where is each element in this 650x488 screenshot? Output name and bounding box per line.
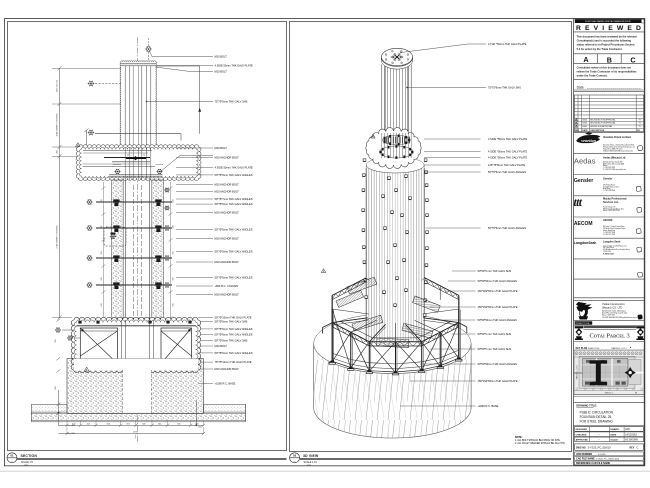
svg-text:FOUNTAIN DETAIL 25: FOUNTAIN DETAIL 25 [580, 415, 612, 419]
svg-text:Consultants(s) and is accorded: Consultants(s) and is accorded the follo… [577, 39, 632, 43]
svg-text:M10 ANCHOR BOLT: M10 ANCHOR BOLT [215, 190, 240, 194]
svg-text:M10 BOLT: M10 BOLT [215, 146, 228, 150]
svg-text:T + 853 2872 3282: T + 853 2872 3282 [603, 167, 615, 169]
svg-text:REV: REV [575, 130, 580, 132]
svg-text:4 SIDE *50mm THK GALV PLATE: 4 SIDE *50mm THK GALV PLATE [488, 149, 527, 153]
svg-text:Aedas (Macau) Ltd.: Aedas (Macau) Ltd. [603, 156, 626, 159]
svg-text:T + 852 2317 7000: T + 852 2317 7000 [603, 232, 615, 234]
svg-text:50*75*6mm THK GALV ANGLES: 50*75*6mm THK GALV ANGLES [215, 275, 253, 279]
svg-text:DRAWN: DRAWN [610, 428, 619, 431]
svg-text:03/03: 03/03 [582, 123, 587, 125]
svg-text:500: 500 [101, 199, 103, 202]
svg-text:5.4 for action by the Trade Co: 5.4 for action by the Trade Contractor. [577, 47, 623, 51]
svg-text:KEY PLAN: KEY PLAN [576, 347, 588, 350]
svg-text:3D VIEW: 3D VIEW [303, 454, 319, 458]
svg-text:venetian: venetian [581, 138, 596, 143]
svg-text:under the Trade Contract.: under the Trade Contract. [577, 74, 608, 78]
svg-text:▲: ▲ [630, 346, 632, 349]
svg-text:50*75*6mm THK GALV ANGLES: 50*75*6mm THK GALV ANGLES [488, 170, 526, 174]
svg-text:2. ALL FILLET WELDED SHOULD B: 2. ALL FILLET WELDED SHOULD BE 3mm THK. [515, 442, 566, 445]
svg-text:LWC: LWC [625, 429, 630, 431]
svg-text:NOTE:: NOTE: [515, 436, 523, 439]
svg-text:3-YS25_PC_05/010: 3-YS25_PC_05/010 [588, 445, 612, 449]
svg-text:50*50*50mm THK GALV ANGLES: 50*50*50mm THK GALV ANGLES [478, 318, 518, 322]
svg-text:PARCEL 1, LOT 2: PARCEL 1, LOT 2 [612, 347, 627, 350]
svg-text:2700 (VERIFY ON SITE): 2700 (VERIFY ON SITE) [57, 225, 59, 248]
svg-text:M10 ANCHOR BOLT: M10 ANCHOR BOLT [215, 293, 240, 297]
svg-text:1219 (V.O.S.): 1219 (V.O.S.) [57, 79, 59, 92]
svg-text:No.258 Praca Kin Heng Long, 18: No.258 Praca Kin Heng Long, 18 andar [602, 313, 628, 315]
svg-text:50*75*6mm THK GALV ANGLES: 50*75*6mm THK GALV ANGLES [215, 227, 253, 231]
svg-text:500: 500 [173, 251, 175, 254]
svg-text:M10 BOLT: M10 BOLT [215, 344, 228, 348]
svg-text:SCALE 1:10: SCALE 1:10 [304, 461, 318, 464]
svg-text:500: 500 [101, 303, 103, 306]
svg-text:50*75*6mm THK GALV ANGLES: 50*75*6mm THK GALV ANGLES [215, 202, 253, 206]
svg-text:150*150*50mm THK GALV PLATE: 150*150*50mm THK GALV PLATE [478, 305, 518, 309]
svg-text:16F China Plaza,: 16F China Plaza, [603, 247, 615, 249]
svg-text:50*75*6mm THK GALV ANGLES: 50*75*6mm THK GALV ANGLES [215, 333, 253, 337]
svg-text:50*50*50mm THK GALV ANGLES: 50*50*50mm THK GALV ANGLES [478, 279, 518, 283]
svg-text:500: 500 [173, 277, 175, 280]
svg-text:(Macau) CO. LTD.: (Macau) CO. LTD. [602, 305, 623, 309]
svg-text:PARCEL 2: PARCEL 2 [605, 392, 614, 395]
svg-text:50: 50 [143, 154, 145, 156]
svg-text:AS SHOWN: AS SHOWN [625, 439, 638, 442]
svg-text:T + 852 2598 8101: T + 852 2598 8101 [603, 190, 615, 192]
svg-text:PUBLIC CIRCULATION: PUBLIC CIRCULATION [580, 410, 614, 414]
svg-text:50*75*6mm THK GALV SHS: 50*75*6mm THK GALV SHS [215, 338, 248, 342]
svg-text:01: 01 [10, 454, 14, 458]
svg-text:500: 500 [101, 277, 103, 280]
svg-text:M10 ANCHOR BOLT: M10 ANCHOR BOLT [215, 236, 240, 240]
svg-text:500: 500 [101, 225, 103, 228]
svg-text:4 SIDE 50mm THK GALV PLATE: 4 SIDE 50mm THK GALV PLATE [215, 64, 253, 68]
svg-text:+1090 R.C. BASE: +1090 R.C. BASE [215, 381, 236, 385]
svg-text:+800 R.C. COLUMN: +800 R.C. COLUMN [215, 284, 239, 288]
svg-text:50*50*5 mm THK GALV SHS: 50*50*5 mm THK GALV SHS [478, 269, 512, 273]
svg-text:50: 50 [127, 154, 129, 156]
svg-text:PROJECT TITLE:: PROJECT TITLE: [575, 323, 590, 325]
svg-text:DESCRIPTION: DESCRIPTION [591, 130, 605, 132]
svg-text:RE-ISSUED FOR APPROVAL: RE-ISSUED FOR APPROVAL [590, 122, 615, 125]
svg-text:3: 3 [576, 119, 577, 121]
svg-text:LangdonSeah: LangdonSeah [574, 241, 596, 245]
svg-text:Macau: Macau [603, 165, 608, 167]
svg-text:M10 ANCHOR BOLT: M10 ANCHOR BOLT [215, 211, 240, 215]
svg-text:REFERENCE CAD FILE NAME: REFERENCE CAD FILE NAME [576, 462, 611, 465]
svg-text:50*50*5 mm THK GALV SHS: 50*50*5 mm THK GALV SHS [478, 332, 512, 336]
svg-text:1: 1 [576, 126, 577, 128]
svg-text:SECTION: SECTION [21, 454, 38, 458]
svg-text:Hong Kong: Hong Kong [603, 188, 610, 190]
svg-text:Consultant review of this docu: Consultant review of this document does … [577, 66, 632, 70]
svg-text:460*200*50mm THK GALV PLATE: 460*200*50mm THK GALV PLATE [478, 289, 518, 293]
svg-text:75*75*6mm THK GALV SHS: 75*75*6mm THK GALV SHS [488, 85, 521, 89]
svg-text:600: 600 [195, 423, 198, 425]
svg-text:Aedas: Aedas [574, 156, 596, 165]
svg-text:464: 464 [158, 423, 161, 425]
svg-text:600: 600 [142, 423, 145, 425]
svg-text:JOB NUMBER: JOB NUMBER [576, 453, 592, 456]
svg-text:relieve the Trade Contractor o: relieve the Trade Contractor of its resp… [577, 70, 638, 74]
svg-text:M10 BOLT: M10 BOLT [215, 55, 228, 59]
svg-text:PARCEL 1, LOT 1: PARCEL 1, LOT 1 [576, 365, 579, 379]
svg-text:+2090 R.C. BASE: +2090 R.C. BASE [478, 404, 499, 408]
svg-text:464: 464 [87, 423, 90, 425]
svg-text:600: 600 [107, 423, 110, 425]
svg-text:status referred to in Projec: status referred to in Project Procedures… [577, 43, 635, 47]
svg-text:50*75*6mm THK GALV SHS: 50*75*6mm THK GALV SHS [215, 319, 248, 323]
svg-text:B: B [607, 55, 612, 64]
svg-text:R E V I E W E D: R E V I E W E D [576, 25, 642, 32]
svg-text:ISSUED FOR APPROVAL: ISSUED FOR APPROVAL [590, 125, 612, 128]
svg-text:AECOM: AECOM [603, 219, 612, 222]
svg-text:F + 852 2317 7009: F + 852 2317 7009 [603, 234, 615, 236]
svg-text:50*50*50mm THK GALV ANGLES: 50*50*50mm THK GALV ANGLES [478, 362, 518, 366]
svg-text:500: 500 [173, 225, 175, 228]
svg-text:SCALE 1:5: SCALE 1:5 [21, 461, 33, 464]
svg-text:F + 853 2872 3266 www.aedas: F + 853 2872 3266 www.aedas.com [603, 169, 627, 171]
svg-text:75*75*6mm THK GALV SHS: 75*75*6mm THK GALV SHS [215, 100, 248, 104]
svg-text:1. ALL BOLT SHOULD BE FIXING: 1. ALL BOLT SHOULD BE FIXING ON SITE. [515, 439, 561, 442]
svg-text:4 SIDE *50mm THK GALV PLATE: 4 SIDE *50mm THK GALV PLATE [488, 137, 527, 141]
svg-text:50*75*10mm THK GALV PLATE: 50*75*10mm THK GALV PLATE [215, 315, 252, 319]
svg-text:692: 692 [127, 423, 130, 425]
svg-text:2: 2 [576, 123, 577, 125]
svg-text:M10 ANCHOR BOLT: M10 ANCHOR BOLT [215, 367, 240, 371]
svg-text:AECOM: AECOM [574, 221, 593, 227]
svg-text:Langdon Seah: Langdon Seah [603, 240, 621, 243]
svg-text:M10 ANCHOR BOLT: M10 ANCHOR BOLT [215, 183, 240, 187]
svg-text:REV: REV [630, 447, 635, 449]
svg-text:150*150*50mm THK GALV PLATE: 150*150*50mm THK GALV PLATE [478, 379, 518, 383]
svg-text:M10 ANCHOR BOLT: M10 ANCHOR BOLT [215, 156, 240, 160]
svg-text:A: A [583, 55, 588, 64]
svg-text:600: 600 [177, 423, 180, 425]
svg-text:50*75*6mm THK GALV ANGLES: 50*75*6mm THK GALV ANGLES [215, 173, 253, 177]
svg-text:APPROVED: APPROVED [576, 439, 589, 442]
svg-text:SCALE: SCALE [610, 439, 618, 442]
svg-text:50*75*6mm THK GALV ANGLES: 50*75*6mm THK GALV ANGLES [488, 226, 526, 230]
svg-text:This document has been reviewe: This document has been reviewed by the r… [577, 35, 637, 39]
svg-text:Macau T (853) 2875 3226: Macau T (853) 2875 3226 [603, 210, 620, 212]
svg-text:3-YS25: 3-YS25 [598, 454, 606, 456]
svg-text:50*75*6mm THK GALV ANGLES: 50*75*6mm THK GALV ANGLES [215, 351, 253, 355]
svg-text:860: 860 [55, 386, 57, 389]
svg-text:Gensler: Gensler [574, 178, 593, 184]
svg-text:Rua de Xangai 175: Rua de Xangai 175 [603, 206, 616, 208]
svg-text:500: 500 [173, 199, 175, 202]
svg-text:CHECKED: CHECKED [576, 434, 587, 436]
svg-text:CAD FILE NAME: CAD FILE NAME [576, 457, 595, 460]
svg-text:Macau T 2875 3323: Macau T 2875 3323 [602, 314, 615, 316]
svg-text:DESIGNED: DESIGNED [576, 429, 588, 431]
svg-text:14/12/2015: 14/12/2015 [625, 434, 637, 436]
svg-text:RE-ISSUED FOR APPROVAL: RE-ISSUED FOR APPROVAL [590, 118, 615, 121]
svg-text:4: 4 [135, 438, 136, 440]
svg-text:1280 (VERIFY ON SITE): 1280 (VERIFY ON SITE) [57, 113, 59, 136]
svg-text:02: 02 [293, 454, 297, 458]
svg-text:C: C [637, 445, 639, 449]
svg-text:4 THK *50mm THK GALV PLATE: 4 THK *50mm THK GALV PLATE [488, 42, 527, 46]
svg-text:75*75*10mm THK GALV PLATE: 75*75*10mm THK GALV PLATE [215, 360, 252, 364]
svg-text:Venetian Orient Limited: Venetian Orient Limited [603, 136, 631, 139]
svg-text:500: 500 [55, 339, 57, 342]
svg-text:4 SIDE 50mm THK GALV PLATE: 4 SIDE 50mm THK GALV PLATE [215, 166, 253, 170]
svg-text:Yadea Construction: Yadea Construction [602, 302, 625, 306]
svg-text:Services Ltd.: Services Ltd. [603, 201, 619, 204]
svg-text:4 SIDE *50mm THK GALV PLATE: 4 SIDE *50mm THK GALV PLATE [488, 155, 527, 159]
svg-text:50*75*6mm THK GALV ANGLES: 50*75*6mm THK GALV ANGLES [215, 327, 253, 331]
svg-text:Gensler: Gensler [603, 177, 612, 180]
svg-text:SCALE 1:7500: SCALE 1:7500 [588, 347, 599, 350]
svg-text:Date :: Date : [577, 85, 586, 89]
svg-text:28/01: 28/01 [582, 126, 587, 128]
svg-text:DATE: DATE [610, 433, 616, 436]
svg-text:50*50*5 mm THK GALV SHS: 50*50*5 mm THK GALV SHS [478, 347, 512, 351]
svg-text:Cᴏᴛᴀɪ Pᴀʀᴄᴇʟ 3: Cᴏᴛᴀɪ Pᴀʀᴄᴇʟ 3 [590, 332, 630, 339]
svg-text:DRAWING TITLE:: DRAWING TITLE: [576, 405, 597, 408]
svg-text:F 2833 1532: F 2833 1532 [603, 254, 614, 256]
svg-text:M10 ANCHOR BOLT: M10 ANCHOR BOLT [215, 260, 240, 264]
svg-text:05/04: 05/04 [582, 119, 587, 121]
svg-text:125*75*8mm THK GALV PLATE: 125*75*8mm THK GALV PLATE [488, 163, 525, 167]
svg-text:500: 500 [173, 303, 175, 306]
svg-text:50*75*6mm THK GALV ANGLES: 50*75*6mm THK GALV ANGLES [215, 250, 253, 254]
svg-text:M10 BOLT: M10 BOLT [215, 70, 228, 74]
svg-text:50*75*7mm THK GALV ANGLES: 50*75*7mm THK GALV ANGLES [215, 197, 253, 201]
svg-text:500: 500 [101, 251, 103, 254]
svg-text:DWG NO: DWG NO [576, 447, 586, 449]
svg-text:3-YS25_PC_05010.dwg: 3-YS25_PC_05010.dwg [596, 458, 620, 460]
svg-text:DATE: DATE [582, 129, 588, 132]
svg-text:FOR STEEL DRAWING: FOR STEEL DRAWING [580, 419, 614, 423]
